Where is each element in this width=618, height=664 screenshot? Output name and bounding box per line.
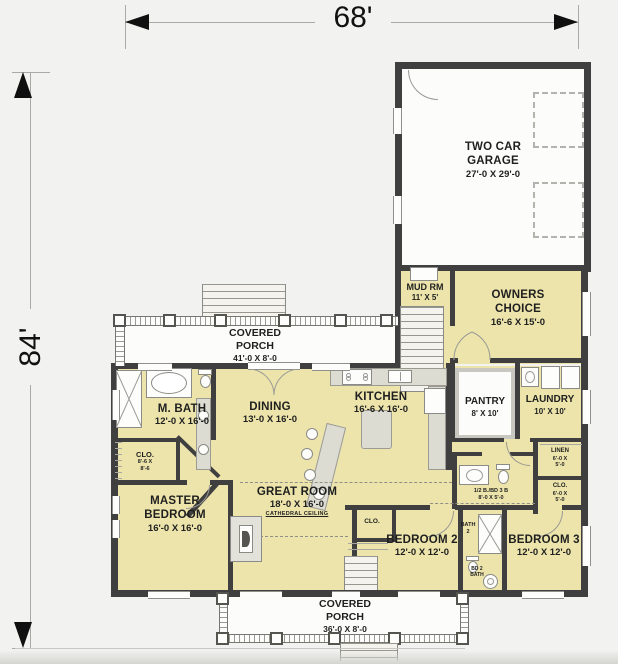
bed3-name: BEDROOM 3	[498, 533, 590, 547]
french-door-arcs	[248, 369, 300, 396]
wall	[490, 358, 584, 363]
bath2-name1: BATH	[459, 522, 477, 529]
label-bed2-closet: CLO.	[352, 518, 392, 526]
cathedral-ceiling-dash	[240, 482, 452, 483]
stairs-lower	[344, 556, 378, 590]
kitchen-sink-fixture	[388, 370, 412, 383]
wall	[452, 438, 504, 442]
porch-bottom-size: 36'-0 X 8'-0	[280, 624, 410, 635]
dim-tick	[578, 5, 579, 49]
master-name: MASTER BEDROOM	[130, 494, 220, 523]
window	[393, 196, 402, 224]
dim-width-label: 68'	[315, 1, 391, 35]
porch-column	[216, 592, 229, 605]
window	[148, 591, 190, 599]
window	[393, 108, 402, 134]
window	[312, 363, 350, 371]
fireplace	[230, 516, 262, 562]
porch-column	[456, 592, 469, 605]
laundry-size: 10' X 10'	[516, 407, 584, 417]
sink-fixture	[483, 574, 498, 589]
linen-size1: 6'-0 X	[539, 456, 581, 463]
dim-height-label: 84'	[14, 309, 48, 385]
window	[138, 363, 172, 371]
porch-column	[216, 632, 229, 645]
porch-top-name: COVERED PORCH	[220, 327, 290, 353]
rclo-size2: 5'-0	[539, 497, 581, 504]
mclo-name: CLO.	[120, 450, 170, 459]
garage-name: TWO CAR GARAGE	[447, 140, 539, 169]
label-mudroom: MUD RM 11' X 5'	[394, 282, 456, 303]
master-size: 16'-0 X 16'-0	[117, 523, 233, 535]
toilet-fixture	[200, 375, 211, 388]
ground-line	[15, 648, 465, 649]
wall	[111, 480, 187, 485]
bed2-name: BEDROOM 2	[376, 533, 468, 547]
label-master-closet: CLO. 8'-6 X 8'-6	[120, 450, 170, 473]
porch-column	[214, 314, 227, 327]
label-linen: LINEN 6'-0 X 5'-0	[539, 448, 581, 469]
label-kitchen: KITCHEN 16'-6 X 16'-0	[325, 390, 437, 416]
arrow-right-icon	[554, 14, 578, 30]
dryer-fixture	[561, 366, 580, 389]
halfbath-name: 1/2 B./BD 3 B	[452, 488, 530, 495]
wall	[455, 505, 537, 510]
window	[112, 496, 120, 514]
bed2clo-name: CLO.	[352, 518, 392, 526]
label-halfbath: 1/2 B./BD 3 B 8'-0 X 5'-0	[452, 488, 530, 502]
ceiling-dash	[430, 503, 535, 504]
pantry-size: 8' X 10'	[454, 409, 516, 419]
porch-steps-top	[202, 284, 286, 316]
great-name: GREAT ROOM	[240, 485, 354, 499]
mudroom-size: 11' X 5'	[394, 293, 456, 303]
mudroom-name: MUD RM	[394, 282, 456, 293]
washer-fixture	[541, 366, 560, 389]
window	[582, 292, 591, 336]
bath2-name2: 2	[459, 529, 477, 536]
label-laundry: LAUNDRY 10' X 10'	[516, 394, 584, 417]
label-bedroom3: BEDROOM 3 12'-0 X 12'-0	[498, 533, 590, 559]
porch-column	[113, 314, 126, 327]
sink-fixture	[198, 444, 209, 455]
wall	[176, 438, 180, 484]
window	[112, 390, 120, 420]
label-great-room: GREAT ROOM 18'-0 X 16'-0 CATHEDRAL CEILI…	[240, 485, 354, 518]
label-covered-porch-bottom: COVERED PORCH 36'-0 X 8'-0	[280, 598, 410, 635]
porch-column	[380, 314, 393, 327]
bed2-size: 12'-0 X 12'-0	[376, 547, 468, 559]
window	[582, 390, 591, 424]
double-door-arc	[453, 330, 491, 360]
dining-size: 13'-0 X 16'-0	[215, 414, 325, 426]
label-pantry: PANTRY 8' X 10'	[454, 396, 516, 419]
window	[522, 591, 564, 599]
dining-name: DINING	[215, 400, 325, 414]
label-covered-porch-top: COVERED PORCH 41'-0 X 8'-0	[185, 327, 325, 364]
great-size: 18'-0 X 16'-0	[240, 499, 354, 511]
bar-stool	[304, 469, 316, 481]
porch-rail-bottom	[219, 634, 469, 643]
mudroom-bench	[410, 267, 438, 281]
bathtub-fixture	[146, 368, 192, 398]
label-master-bedroom: MASTER BEDROOM 16'-0 X 16'-0	[117, 494, 233, 535]
porch-column	[163, 314, 176, 327]
arrow-left-icon	[125, 14, 149, 30]
arrow-up-icon	[14, 72, 32, 98]
bar-stool	[306, 428, 318, 440]
label-garage: TWO CAR GARAGE 27'-0 X 29'-0	[437, 140, 549, 181]
laundry-name: LAUNDRY	[516, 394, 584, 407]
kitchen-name: KITCHEN	[325, 390, 437, 404]
halfbath-size: 8'-0 X 5'-0	[452, 495, 530, 502]
rclo-name: CLO.	[539, 483, 581, 491]
porch-bottom-name: COVERED PORCH	[310, 598, 380, 624]
label-dining: DINING 13'-0 X 16'-0	[215, 400, 325, 426]
arrow-down-icon	[14, 622, 32, 648]
porch-rail-top	[115, 316, 398, 326]
halfbath-sink-fixture	[459, 465, 489, 485]
range-fixture	[342, 369, 372, 385]
wall	[345, 505, 430, 510]
label-bath2: BATH 2	[459, 522, 477, 536]
wall	[530, 438, 584, 442]
porch-column	[334, 314, 347, 327]
utility-sink-fixture	[521, 367, 539, 387]
garage-door-opening	[533, 182, 584, 238]
wall	[562, 505, 586, 510]
owners-name: OWNERS CHOICE	[478, 288, 558, 317]
rclo-size1: 6'-0 X	[539, 491, 581, 498]
porch-column	[456, 632, 469, 645]
linen-size2: 5'-0	[539, 462, 581, 469]
page-edge-shading	[0, 650, 618, 664]
floor-plan-page: { "plan": { "overall_width": "68'", "ove…	[0, 0, 618, 664]
owners-size: 16'-6 X 15'-0	[456, 317, 580, 329]
label-right-closet: CLO. 6'-0 X 5'-0	[539, 483, 581, 504]
window	[112, 520, 120, 538]
toilet-fixture	[498, 470, 509, 484]
mclo-size2: 8'-6	[120, 466, 170, 473]
wall	[533, 476, 585, 480]
label-bedroom2: BEDROOM 2 12'-0 X 12'-0	[376, 533, 468, 559]
mclo-size1: 8'-6 X	[120, 459, 170, 466]
kitchen-size: 16'-6 X 16'-0	[325, 404, 437, 416]
pantry-name: PANTRY	[454, 396, 516, 409]
label-owners-choice: OWNERS CHOICE 16'-6 X 15'-0	[456, 288, 580, 329]
bed3-size: 12'-0 X 12'-0	[498, 547, 590, 559]
window	[582, 526, 591, 566]
linen-name: LINEN	[539, 448, 581, 456]
bar-stool	[301, 448, 313, 460]
garage-size: 27'-0 X 29'-0	[437, 169, 549, 181]
porch-column	[278, 314, 291, 327]
